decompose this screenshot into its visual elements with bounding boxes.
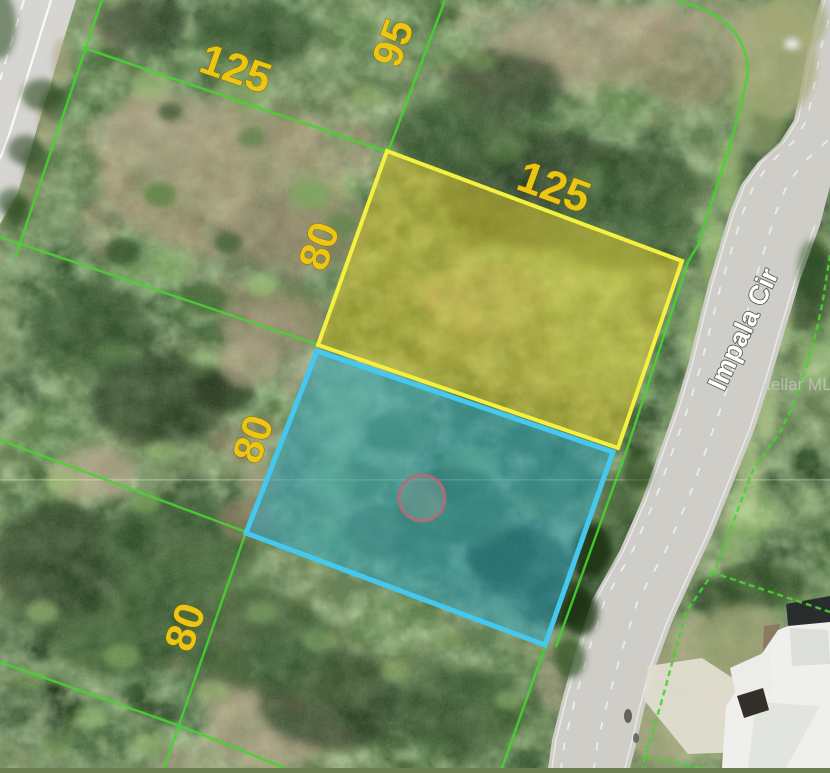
svg-text:Stellar MLS: Stellar MLS xyxy=(755,375,830,394)
